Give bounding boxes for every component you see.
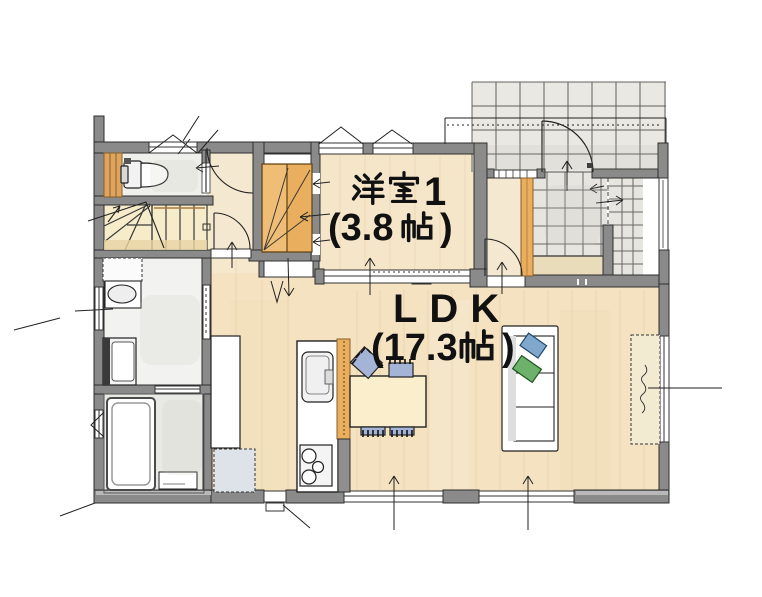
- svg-text:): ): [502, 327, 515, 369]
- svg-text:(3.8: (3.8: [328, 207, 393, 249]
- svg-text:(17.3: (17.3: [371, 327, 458, 369]
- svg-text:): ): [440, 207, 453, 249]
- svg-text:LDK: LDK: [393, 287, 511, 331]
